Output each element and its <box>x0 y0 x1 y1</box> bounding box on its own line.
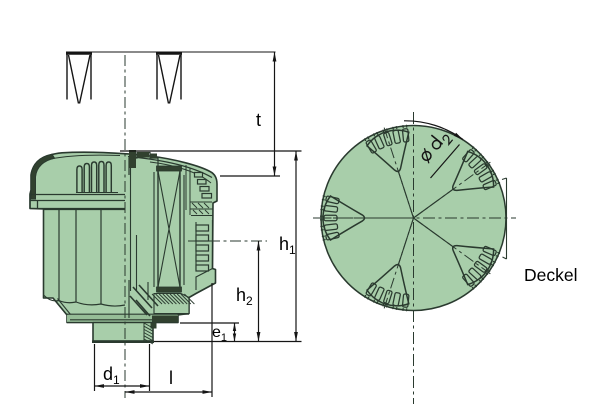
svg-text:Deckel: Deckel <box>524 265 578 285</box>
svg-text:l: l <box>169 368 173 388</box>
svg-text:t: t <box>256 110 261 130</box>
